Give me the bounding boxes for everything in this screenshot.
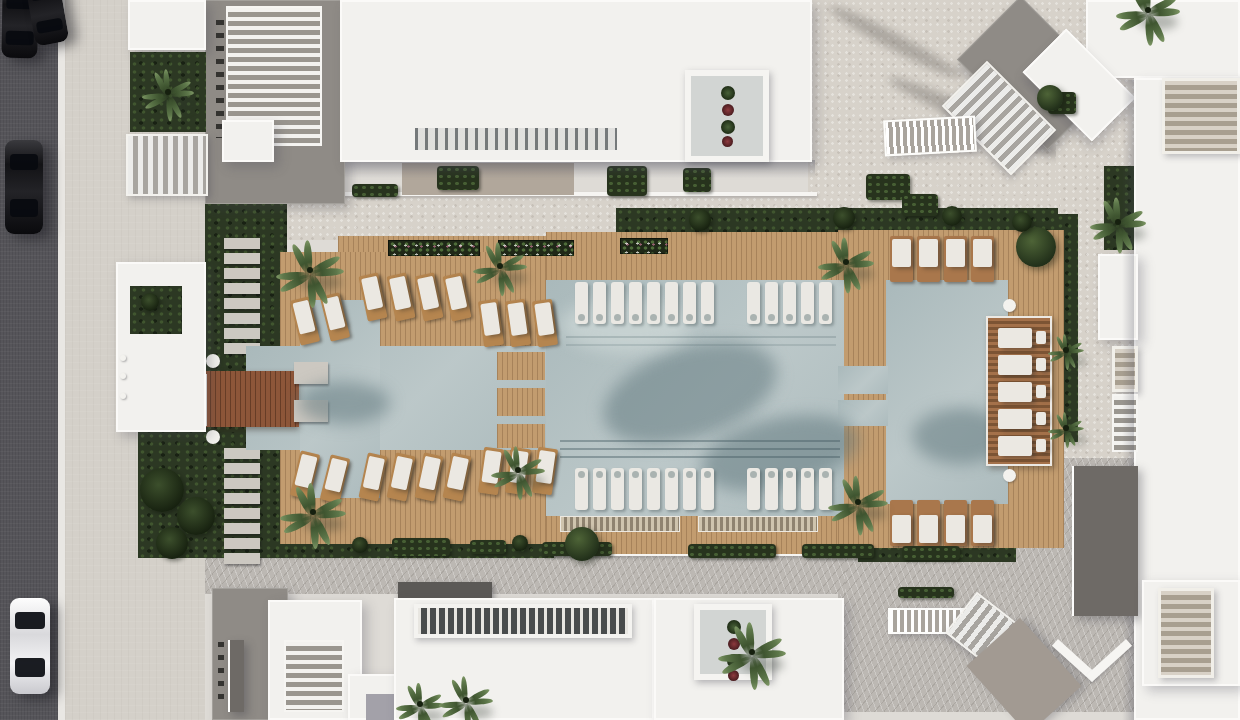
palm-tree [488, 440, 547, 499]
cabana-mattress [998, 355, 1032, 375]
in-pool-lounger [801, 468, 814, 510]
palm-tree [470, 236, 529, 295]
lounger-pillow [668, 471, 675, 478]
stepping-stones [224, 553, 260, 564]
palm-trunk-top [843, 259, 849, 265]
palm-tree [1113, 0, 1183, 45]
palm-trunk-top [463, 697, 469, 703]
railing-slats [883, 116, 977, 157]
bed-mattress [946, 239, 965, 267]
lounger-cushion [445, 276, 467, 311]
palm-trunk-top [1063, 347, 1069, 353]
lounger-pillow [614, 471, 621, 478]
patio-table [120, 393, 126, 399]
palm-tree [273, 233, 348, 308]
lounger-pillow [768, 471, 775, 478]
patio-table [120, 355, 126, 361]
garden-bush [1012, 212, 1032, 232]
in-pool-lounger [747, 468, 760, 510]
lounger-pillow [686, 314, 693, 321]
lounger-pillow [650, 314, 657, 321]
stepping-stones [224, 268, 260, 279]
flower-planter [620, 238, 668, 254]
parked-car [5, 140, 43, 234]
day-bed [971, 500, 994, 546]
palm-trunk-top [1063, 425, 1069, 431]
car-windshield [30, 0, 57, 2]
cabana-mattress [998, 328, 1032, 348]
cabana-side-table [1036, 439, 1046, 452]
lounger-pillow [704, 314, 711, 321]
palm-tree [815, 231, 877, 293]
in-pool-lounger [747, 282, 760, 324]
lounger-cushion [507, 302, 527, 336]
deck-island [497, 388, 545, 416]
courtyard-garden-left [130, 286, 182, 334]
roof-railing [415, 128, 617, 150]
palm-trunk-top [497, 263, 503, 269]
flower-planter [388, 240, 480, 256]
cabana-side-table [1036, 358, 1046, 371]
roof-dark-strip [228, 640, 244, 712]
palm-tree [436, 670, 495, 720]
lounger-pillow [786, 314, 793, 321]
parked-car [10, 598, 50, 694]
roof-inset [222, 120, 274, 162]
cabana-mattress [998, 409, 1032, 429]
courtyard-plant [721, 120, 735, 134]
deck-island [497, 352, 545, 380]
stepping-stones [224, 298, 260, 309]
in-pool-lounger [765, 282, 778, 324]
courtyard-plant [722, 104, 734, 116]
cabana-bed-column [986, 316, 1052, 466]
cabana-mattress [998, 382, 1032, 402]
bed-mattress [946, 515, 965, 543]
lounger-pillow [704, 471, 711, 478]
day-bed [944, 236, 967, 282]
cabana-mattress [998, 436, 1032, 456]
bed-mattress [919, 239, 938, 267]
cabana-side-table [1036, 385, 1046, 398]
courtyard-top [685, 70, 769, 162]
pergola-top-right [1162, 78, 1240, 154]
palm-trunk-top [310, 509, 316, 515]
lounger-cushion [534, 302, 554, 336]
lounger-pillow [822, 314, 829, 321]
lounger-pillow [804, 471, 811, 478]
lounger-cushion [389, 276, 411, 311]
lounger-cushion [361, 276, 383, 311]
louvre-roof [284, 640, 344, 712]
planter-dark [898, 587, 954, 598]
lounger-pillow [750, 314, 757, 321]
garden-bush [689, 209, 711, 231]
bed-mattress [919, 515, 938, 543]
pool-lane-line [560, 448, 840, 450]
pergola-bottom-right [1158, 588, 1214, 678]
cabana-side-table [1036, 412, 1046, 425]
parasol [206, 354, 220, 368]
garden-bush [140, 468, 184, 512]
stepping-stones [224, 253, 260, 264]
stepping-stones [224, 463, 260, 474]
parasol [1003, 299, 1016, 312]
bed-mattress [973, 239, 992, 267]
car-windshield [15, 612, 45, 628]
garden-bush [177, 497, 215, 535]
stepping-stones [224, 523, 260, 534]
stepping-stones [224, 508, 260, 519]
in-pool-lounger [701, 468, 714, 510]
in-pool-lounger [611, 468, 624, 510]
palm-trunk-top [165, 89, 171, 95]
day-bed [971, 236, 994, 282]
stepping-stones [224, 238, 260, 249]
step-pad [294, 362, 328, 384]
palm-trunk-top [515, 467, 521, 473]
stepping-stones [224, 493, 260, 504]
palm-trunk-top [1115, 219, 1121, 225]
garden-bush [512, 535, 528, 551]
lounger-pillow [768, 314, 775, 321]
in-pool-lounger [629, 282, 642, 324]
day-bed [890, 500, 913, 546]
palm-tree [1087, 191, 1149, 253]
palm-trunk-top [855, 499, 861, 505]
garden-bush [352, 537, 368, 553]
patio-table [120, 373, 126, 379]
garden-bush [141, 293, 159, 311]
pool-lane-line [566, 344, 836, 346]
resort-aerial-render [0, 0, 1240, 720]
planter-hedge [352, 184, 398, 197]
lounger-pillow [578, 471, 585, 478]
round-tree [565, 527, 599, 561]
bed-mattress [892, 515, 911, 543]
in-pool-lounger [575, 282, 588, 324]
stepping-stones [224, 313, 260, 324]
lounger-pillow [786, 471, 793, 478]
car-rear-window [6, 31, 34, 45]
palm-tree [715, 615, 790, 690]
lounger-pillow [578, 314, 585, 321]
lounger-pillow [596, 314, 603, 321]
window-row [218, 642, 224, 706]
day-bed [917, 500, 940, 546]
lounger-pillow [632, 314, 639, 321]
car-rear-window [36, 17, 64, 34]
in-pool-lounger [575, 468, 588, 510]
courtyard-plant [721, 86, 735, 100]
in-pool-lounger [801, 282, 814, 324]
car-rear-window [15, 658, 45, 676]
garden-bush [833, 207, 855, 229]
palm-tree [1046, 330, 1086, 370]
palm-trunk-top [1145, 7, 1151, 13]
planter-hedge [470, 540, 506, 554]
pool-channel [838, 366, 888, 394]
lounger-pillow [650, 471, 657, 478]
stairs-top-left [126, 134, 208, 196]
street-curb [58, 0, 65, 720]
lounger-pillow [668, 314, 675, 321]
palm-trunk-top [417, 701, 423, 707]
bed-mattress [973, 515, 992, 543]
stepping-stones [224, 478, 260, 489]
in-pool-lounger [683, 282, 696, 324]
palm-trunk-top [307, 267, 313, 273]
lounger-pillow [596, 471, 603, 478]
car-windshield [10, 154, 39, 170]
planter-hedge [392, 538, 450, 556]
parasol [1003, 469, 1016, 482]
day-bed [890, 236, 913, 282]
in-pool-lounger [665, 468, 678, 510]
roof-slat-opening [414, 604, 632, 638]
round-tree [1016, 227, 1056, 267]
water-palm-shadow [298, 382, 390, 424]
planter-hedge [802, 544, 874, 558]
in-pool-lounger [683, 468, 696, 510]
day-bed [917, 236, 940, 282]
roof-strip-tl [128, 0, 206, 50]
lounger-pillow [686, 471, 693, 478]
lounger-cushion [417, 276, 439, 311]
garden-bush [942, 206, 962, 226]
stepping-stones [224, 328, 260, 339]
lounger-pillow [614, 314, 621, 321]
pool-deck-top [546, 232, 844, 280]
pool-lane-line [560, 440, 840, 442]
in-pool-lounger [665, 282, 678, 324]
palm-tree [139, 63, 196, 120]
palm-tree [825, 469, 891, 535]
lounger-pillow [750, 471, 757, 478]
palm-tree [277, 476, 350, 549]
in-pool-lounger [593, 468, 606, 510]
pool-lane-line [560, 456, 840, 458]
in-pool-lounger [611, 282, 624, 324]
in-pool-lounger [765, 468, 778, 510]
lounger-cushion [480, 302, 500, 336]
in-pool-lounger [647, 282, 660, 324]
stepping-stones [224, 538, 260, 549]
walkway-bottom [205, 556, 845, 594]
timber-bridge [205, 371, 299, 427]
day-bed [944, 500, 967, 546]
car-rear-window [10, 199, 39, 217]
building-edge-shadow [1122, 80, 1134, 720]
parasol [206, 430, 220, 444]
bed-mattress [892, 239, 911, 267]
planter-hedge [902, 194, 938, 216]
palm-trunk-top [749, 649, 755, 655]
pergola-strip [698, 516, 818, 532]
pool-lane-line [566, 336, 836, 338]
in-pool-lounger [647, 468, 660, 510]
palm-tree [1046, 408, 1086, 448]
in-pool-lounger [593, 282, 606, 324]
courtyard-plant [722, 136, 733, 147]
in-pool-lounger [783, 468, 796, 510]
planter-hedge [902, 546, 960, 560]
lounger-pillow [804, 314, 811, 321]
lounger-pillow [632, 471, 639, 478]
planter-hedge [688, 544, 776, 558]
in-pool-lounger [783, 282, 796, 324]
in-pool-lounger [629, 468, 642, 510]
round-tree [1037, 85, 1063, 111]
stepping-stones [224, 283, 260, 294]
in-pool-lounger [701, 282, 714, 324]
cabana-side-table [1036, 331, 1046, 344]
garden-bush [156, 527, 188, 559]
building-dark-roof [1072, 466, 1138, 616]
